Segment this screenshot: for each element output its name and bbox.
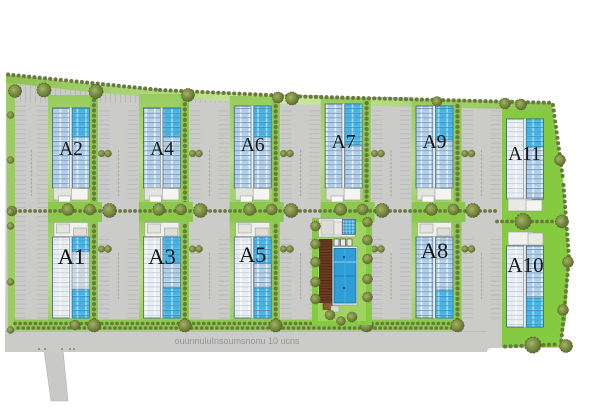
svg-text:A8: A8 <box>421 238 449 263</box>
svg-text:A6: A6 <box>241 135 265 156</box>
svg-text:ouunnuluInsoumsnonu 10 ucns: ouunnuluInsoumsnonu 10 ucns <box>174 336 300 346</box>
svg-text:A5: A5 <box>239 242 267 267</box>
svg-text:A11: A11 <box>508 144 541 165</box>
svg-text:A4: A4 <box>150 139 174 160</box>
svg-text:A2: A2 <box>59 139 83 160</box>
svg-text:A10: A10 <box>507 253 543 277</box>
svg-text:A9: A9 <box>423 132 447 153</box>
svg-text:A1: A1 <box>58 244 86 269</box>
svg-text:A7: A7 <box>332 132 356 153</box>
svg-text:A3: A3 <box>148 244 176 269</box>
